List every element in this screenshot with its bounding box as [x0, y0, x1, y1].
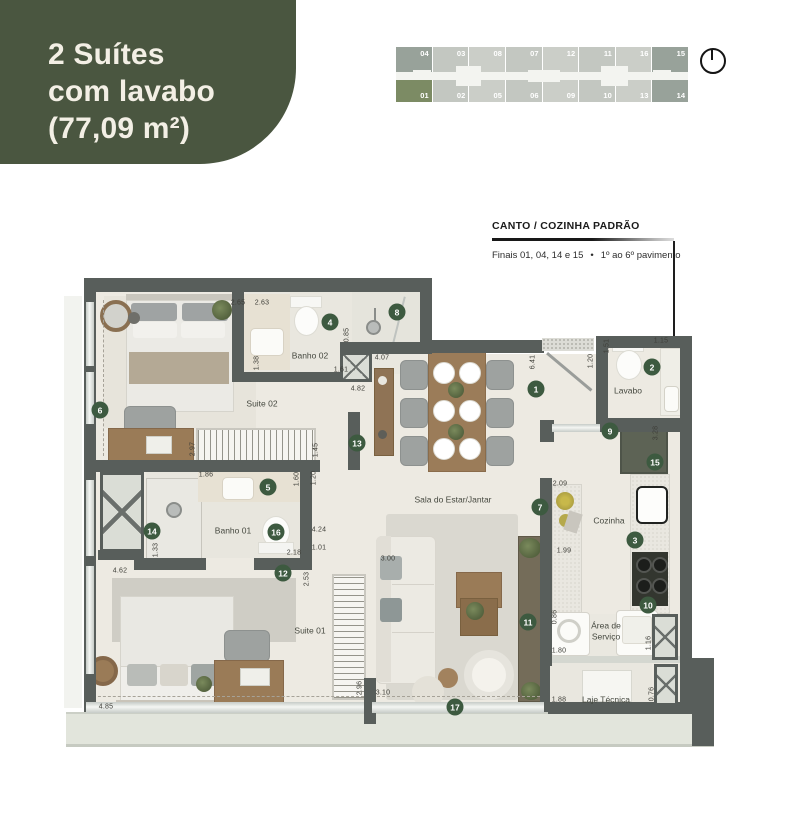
place-setting [459, 438, 481, 460]
sink-banho01 [222, 477, 254, 500]
fruit-bowl [556, 492, 574, 510]
kitchen-sink [636, 486, 668, 524]
dimension-label: 1.80 [552, 648, 566, 655]
plant-suite01 [196, 676, 212, 692]
dimension-label: 1.33 [153, 543, 160, 557]
entry-doormat [542, 338, 594, 351]
washing-machine-door [557, 619, 581, 643]
table-plant [448, 424, 464, 440]
dimension-label: 2.09 [553, 481, 567, 488]
plan-marker-17: 17 [447, 699, 464, 716]
dimension-label: 1.45 [313, 443, 320, 457]
dimension-label: 1.99 [557, 548, 571, 555]
sink-banho02 [250, 328, 284, 356]
duct-shaft [100, 472, 144, 552]
dimension-label: 2.97 [190, 442, 197, 456]
plan-marker-14: 14 [144, 523, 161, 540]
dining-chair [486, 436, 514, 466]
dining-chair [400, 360, 428, 390]
table-plant [448, 382, 464, 398]
bed-suite02-pillow [133, 322, 177, 338]
wall [692, 658, 714, 746]
room-label: Lavabo [614, 386, 642, 397]
buffet-plant [521, 682, 541, 700]
plant-suite02 [212, 300, 232, 320]
shower-head-banho02 [366, 320, 381, 335]
dimension-label: 4.62 [113, 568, 127, 575]
wall [232, 372, 342, 382]
dining-chair [486, 360, 514, 390]
dimension-label: 2.53 [304, 572, 311, 586]
dimension-label: 6.41 [530, 355, 537, 369]
plan-marker-2: 2 [644, 359, 661, 376]
wall [432, 340, 544, 353]
closet-suite02 [196, 428, 316, 464]
plan-marker-4: 4 [322, 314, 339, 331]
room-label: Banho 02 [292, 351, 328, 362]
dining-chair [400, 436, 428, 466]
dimension-label: 1.88 [552, 697, 566, 704]
toilet-banho02 [294, 306, 319, 336]
plan-marker-6: 6 [92, 402, 109, 419]
wall [680, 336, 692, 712]
projection-line [103, 300, 104, 456]
stove-burner [652, 578, 668, 594]
bed-suite02-pillow [181, 322, 225, 338]
projection-line [372, 696, 540, 697]
toilet-lavabo [616, 350, 642, 380]
dimension-label: 1.38 [254, 356, 261, 370]
dimension-label: 4.24 [312, 527, 326, 534]
bed-suite01-pillow [127, 664, 157, 686]
dimension-label: 4.82 [351, 386, 365, 393]
dimension-label: 4.85 [99, 704, 113, 711]
sofa-pillow [380, 598, 402, 622]
wall [420, 292, 432, 348]
dining-chair [400, 398, 428, 428]
sofa-seam [392, 584, 434, 585]
dimension-label: 0.85 [344, 328, 351, 342]
sideboard-decor [378, 430, 387, 439]
dimension-label: 2.65 [231, 300, 245, 307]
room-label: Suite 01 [294, 626, 325, 637]
place-setting [459, 362, 481, 384]
shower-arm-banho02 [374, 308, 376, 322]
coffee-table-plant [466, 602, 484, 620]
dimension-label: 1.01 [312, 545, 326, 552]
shower-head-banho01 [166, 502, 182, 518]
dimension-label: 3.00 [381, 556, 395, 563]
plan-marker-5: 5 [260, 479, 277, 496]
plan-marker-15: 15 [647, 454, 664, 471]
plan-marker-3: 3 [627, 532, 644, 549]
duct-shaft [652, 614, 678, 660]
plan-marker-9: 9 [602, 423, 619, 440]
stove-burner [636, 557, 652, 573]
window [86, 372, 94, 424]
room-label: Laje Técnica [582, 695, 630, 706]
projection-line [88, 696, 364, 697]
wall [134, 558, 206, 570]
plan-marker-11: 11 [520, 614, 537, 631]
dimension-label: 1.60 [294, 472, 301, 486]
sofa-seam [392, 632, 434, 633]
armchair [464, 650, 514, 700]
plan-marker-1: 1 [528, 381, 545, 398]
dimension-label: 1.16 [646, 636, 653, 650]
room-label: Banho 01 [215, 526, 251, 537]
place-setting [459, 400, 481, 422]
dimension-label: 0.76 [649, 687, 656, 701]
room-label: Sala do Estar/Jantar [414, 495, 491, 506]
pocket-door-kitchen [552, 424, 600, 432]
bed-suite01-pillow [160, 664, 188, 686]
window [86, 566, 94, 674]
room-label: Suite 02 [246, 399, 277, 410]
plan-marker-16: 16 [268, 524, 285, 541]
plan-marker-8: 8 [389, 304, 406, 321]
plan-marker-10: 10 [640, 597, 657, 614]
wall [84, 278, 432, 292]
wall [84, 460, 320, 472]
bed-suite01-duvet [120, 596, 234, 670]
plan-marker-13: 13 [349, 435, 366, 452]
sideboard-decor [378, 376, 387, 385]
laptop-suite02 [146, 436, 172, 454]
dimension-label: 3.10 [376, 690, 390, 697]
desk-chair-suite01 [224, 630, 270, 662]
plan-marker-12: 12 [275, 565, 292, 582]
floor-plan-page: 2 Suítes com lavabo (77,09 m²) 040308071… [0, 0, 800, 824]
bed-suite02-throw [129, 352, 229, 384]
dimension-label: 2.63 [255, 300, 269, 307]
dimension-label: 1.15 [654, 338, 668, 345]
sink-lavabo [664, 386, 679, 412]
window [86, 480, 94, 556]
dimension-label: 0.86 [552, 610, 559, 624]
room-label: Área de Serviço [583, 620, 629, 641]
wall [364, 678, 376, 724]
dimension-label: 1.20 [588, 354, 595, 368]
duct-shaft [654, 664, 678, 706]
place-setting [433, 438, 455, 460]
stove-burner [652, 557, 668, 573]
dimension-label: 3.28 [653, 426, 660, 440]
wall [540, 614, 552, 666]
place-setting [433, 362, 455, 384]
dining-chair [486, 398, 514, 428]
window [86, 302, 94, 366]
place-setting [433, 400, 455, 422]
plan-marker-7: 7 [532, 499, 549, 516]
dimension-label: 4.07 [375, 355, 389, 362]
buffet-plant [519, 538, 541, 558]
dimension-label: 1.51 [604, 339, 611, 353]
room-label: Cozinha [593, 516, 624, 527]
dimension-label: 1.20 [311, 471, 318, 485]
dimension-label: 1.61 [334, 367, 348, 374]
dimension-label: 2.96 [357, 681, 364, 695]
stove-burner [636, 578, 652, 594]
dimension-label: 1.86 [199, 472, 213, 479]
laptop-suite01 [240, 668, 270, 686]
clock-suite02 [128, 312, 140, 324]
dimension-label: 2.18 [287, 550, 301, 557]
balcony-window-suite01 [86, 702, 364, 713]
